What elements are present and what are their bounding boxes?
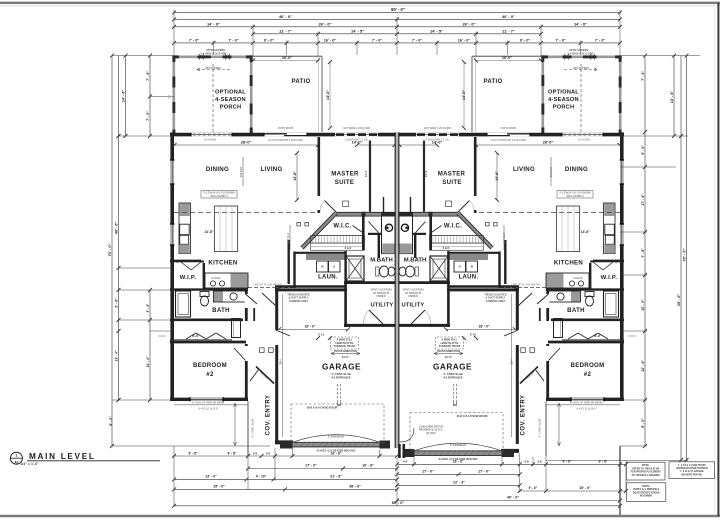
svg-text:SUITE: SUITE — [335, 179, 354, 186]
svg-text:DOOR SPECIFICATIONS: DOOR SPECIFICATIONS — [633, 491, 660, 494]
svg-text:80' - 0": 80' - 0" — [392, 501, 405, 505]
svg-text:LINE OF FLUSH BM ABV: LINE OF FLUSH BM ABV — [511, 284, 541, 287]
svg-text:5-1X10 LP HDR W/ WDW: 5-1X10 LP HDR W/ WDW — [570, 400, 603, 404]
svg-text:17' - 4": 17' - 4" — [641, 194, 645, 206]
svg-text:PATIO: PATIO — [484, 79, 503, 85]
svg-text:COMMON AREA: COMMON AREA — [289, 300, 309, 303]
svg-text:5' SIDEWALK: 5' SIDEWALK — [328, 434, 345, 438]
svg-text:40' - 0": 40' - 0" — [502, 14, 515, 19]
svg-text:4" CONC SLAB: 4" CONC SLAB — [538, 418, 542, 437]
svg-text:8' - 0": 8' - 0" — [641, 418, 645, 428]
svg-text:16' - 0": 16' - 0" — [458, 39, 471, 43]
svg-text:4-6 ENTRANCE: 4-6 ENTRANCE — [331, 376, 351, 380]
svg-text:7' - 0": 7' - 0" — [146, 111, 150, 121]
svg-text:39' - 0": 39' - 0" — [677, 294, 681, 307]
svg-text:16' - 8": 16' - 8" — [453, 460, 464, 464]
svg-text:S & R: S & R — [345, 247, 352, 250]
svg-text:6 2-6 SGD: 6 2-6 SGD — [204, 138, 216, 141]
svg-text:17' - 0": 17' - 0" — [478, 470, 490, 474]
svg-text:70' - 0": 70' - 0" — [107, 243, 112, 256]
svg-text:15' - 0": 15' - 0" — [579, 486, 591, 490]
svg-text:9-4 CLG @ 8-0: 9-4 CLG @ 8-0 — [576, 407, 595, 411]
svg-text:9' - 8": 9' - 8" — [228, 451, 237, 455]
svg-text:COV. ENTRY: COV. ENTRY — [266, 395, 272, 436]
svg-text:OVERHEAD DOOR TORSION: OVERHEAD DOOR TORSION — [676, 467, 708, 470]
svg-text:9' - 0": 9' - 0" — [520, 39, 531, 43]
svg-text:S & R: S & R — [443, 247, 450, 250]
svg-text:4" CONC SLAB: 4" CONC SLAB — [443, 372, 463, 376]
svg-text:7' - 0": 7' - 0" — [555, 39, 566, 43]
svg-text:2X6 EXT: 2X6 EXT — [239, 166, 243, 177]
svg-text:LIVING: LIVING — [260, 166, 282, 173]
svg-text:22' - 3": 22' - 3" — [453, 481, 465, 485]
svg-text:HEADERS PER IRC: HEADERS PER IRC — [681, 473, 703, 476]
svg-text:UNDER: UNDER — [408, 294, 417, 298]
svg-text:7 - 3 1/2 X 14 GDR TRUSS: 7 - 3 1/2 X 14 GDR TRUSS — [678, 464, 706, 467]
svg-text:5' - 4": 5' - 4" — [146, 303, 150, 312]
svg-text:MAIN LEVEL: MAIN LEVEL — [29, 452, 96, 461]
svg-text:16'-0": 16'-0" — [502, 56, 513, 60]
svg-text:LIVING: LIVING — [513, 166, 535, 173]
svg-text:TRUSS DIRECTION: TRUSS DIRECTION — [437, 350, 460, 353]
svg-text:#2: #2 — [206, 371, 214, 378]
svg-text:7' - 0": 7' - 0" — [595, 39, 606, 43]
svg-text:LINE OF FLUSH BM ABV: LINE OF FLUSH BM ABV — [253, 284, 283, 287]
svg-text:17' - 0": 17' - 0" — [305, 464, 317, 468]
svg-text:KITCHEN: KITCHEN — [208, 260, 237, 267]
svg-text:GARAGE: GARAGE — [322, 363, 361, 372]
svg-text:RANGE: RANGE — [573, 277, 582, 280]
svg-text:40' - 0": 40' - 0" — [279, 14, 292, 19]
svg-text:6'-0": 6'-0" — [192, 334, 200, 338]
svg-text:10' - 0": 10' - 0" — [641, 299, 645, 311]
svg-text:21-4: 21-4 — [509, 359, 513, 365]
svg-text:7' - 0": 7' - 0" — [372, 39, 383, 43]
svg-text:6 2-6 SGD: 6 2-6 SGD — [578, 138, 590, 141]
svg-text:ATT ACCESS: ATT ACCESS — [205, 67, 221, 70]
svg-text:4" CONC SLAB: 4" CONC SLAB — [251, 418, 255, 437]
svg-text:ABV (VERIFY): ABV (VERIFY) — [210, 194, 227, 198]
svg-text:14' - 0": 14' - 0" — [207, 21, 220, 26]
svg-text:16' - 8": 16' - 8" — [362, 464, 374, 468]
svg-text:40' - 0": 40' - 0" — [115, 222, 119, 235]
svg-text:12'-8: 12'-8 — [424, 170, 428, 177]
svg-text:KITCHEN: KITCHEN — [554, 260, 583, 267]
svg-text:GARAGE: GARAGE — [433, 363, 472, 372]
svg-text:MASTER: MASTER — [438, 171, 466, 178]
svg-text:2X6 EXT: 2X6 EXT — [549, 166, 553, 177]
svg-text:2-8: 2-8 — [537, 460, 541, 464]
svg-text:18' - 0": 18' - 0" — [478, 325, 489, 329]
svg-text:UNDER: UNDER — [376, 294, 385, 298]
svg-text:STORAGE TRUSS: STORAGE TRUSS — [334, 345, 356, 348]
svg-text:5-1X10 LP HDR W/ WDW: 5-1X10 LP HDR W/ WDW — [192, 400, 225, 404]
svg-text:14'-8": 14'-8" — [581, 230, 590, 234]
svg-text:PATIO DOOR: PATIO DOOR — [501, 127, 517, 130]
svg-text:M.BATH: M.BATH — [370, 258, 392, 264]
svg-text:1/4" = 1'-0": 1/4" = 1'-0" — [20, 462, 39, 466]
svg-text:9' - 0": 9' - 0" — [264, 39, 275, 43]
svg-text:14'-0": 14'-0" — [326, 90, 330, 101]
svg-text:D: D — [459, 265, 461, 269]
svg-text:14' - 4": 14' - 4" — [670, 91, 674, 104]
svg-text:D: D — [333, 265, 335, 269]
svg-text:LR 6-0 PATIO DR 2-2X10 HDR: LR 6-0 PATIO DR 2-2X10 HDR — [268, 139, 303, 142]
svg-text:5' SIDEWALK: 5' SIDEWALK — [450, 443, 467, 447]
svg-text:16-8 X 8-0 OVHD DOOR: 16-8 X 8-0 OVHD DOOR — [456, 414, 487, 418]
svg-text:18' - 0": 18' - 0" — [304, 325, 315, 329]
svg-text:7' - 0": 7' - 0" — [412, 39, 423, 43]
svg-text:2-8: 2-8 — [253, 451, 257, 455]
svg-text:9' - 8": 9' - 8" — [115, 298, 119, 308]
svg-text:BATH: BATH — [567, 307, 585, 314]
svg-text:BEDROOM: BEDROOM — [571, 362, 605, 369]
svg-text:14'-8": 14'-8" — [204, 230, 213, 234]
svg-text:9' - 6": 9' - 6" — [529, 486, 538, 490]
svg-text:2-8: 2-8 — [266, 451, 270, 455]
svg-text:LAUN.: LAUN. — [459, 275, 479, 281]
svg-text:NOTE:: NOTE: — [642, 485, 650, 488]
svg-text:SUITE: SUITE — [442, 179, 461, 186]
svg-text:14' - 0": 14' - 0" — [574, 21, 587, 26]
svg-text:13' - 4": 13' - 4" — [115, 350, 119, 361]
svg-text:7' - 0": 7' - 0" — [189, 39, 200, 43]
svg-text:DINING: DINING — [565, 166, 588, 173]
svg-text:7 - 2 CLG AT GARAGE: 7 - 2 CLG AT GARAGE — [680, 470, 705, 473]
svg-text:14'-0": 14'-0" — [432, 139, 443, 144]
svg-text:OPTIONAL: OPTIONAL — [548, 90, 579, 96]
svg-text:NOTE:: NOTE: — [642, 464, 650, 467]
svg-text:9' - 8": 9' - 8" — [189, 451, 198, 455]
svg-text:16-8 X 8-0 OVHD DOOR: 16-8 X 8-0 OVHD DOOR — [306, 405, 337, 409]
svg-text:16' - 0": 16' - 0" — [324, 39, 337, 43]
svg-text:6' - 0": 6' - 0" — [641, 145, 645, 155]
svg-text:OF TRUSSES & BEARING: OF TRUSSES & BEARING — [632, 474, 660, 477]
svg-text:14' - 5": 14' - 5" — [430, 28, 443, 33]
svg-text:ATTIC ACCESS: ATTIC ACCESS — [206, 48, 225, 52]
svg-text:11' - 7": 11' - 7" — [279, 28, 292, 33]
svg-text:#2: #2 — [584, 371, 592, 378]
svg-text:21-4: 21-4 — [279, 359, 283, 365]
svg-text:W.I.P.: W.I.P. — [601, 275, 618, 281]
svg-text:PATIO DOOR: PATIO DOOR — [278, 127, 294, 130]
svg-text:9-4 CLG: 9-4 CLG — [502, 233, 506, 243]
svg-text:7' - 4": 7' - 4" — [641, 71, 645, 81]
svg-text:FOR PROPER PLACEMENT: FOR PROPER PLACEMENT — [631, 471, 662, 474]
svg-text:7' - 8": 7' - 8" — [641, 248, 645, 258]
svg-text:9-4 CLG: 9-4 CLG — [286, 233, 290, 243]
svg-text:14' - 5": 14' - 5" — [351, 28, 364, 33]
svg-text:W.I.C.: W.I.C. — [333, 224, 351, 230]
svg-text:16'-0": 16'-0" — [282, 56, 293, 60]
svg-text:14'-8": 14'-8" — [293, 171, 297, 181]
svg-text:24'-0": 24'-0" — [342, 355, 350, 359]
svg-text:LAUN.: LAUN. — [318, 275, 338, 281]
svg-text:26' - 0": 26' - 0" — [318, 21, 331, 26]
svg-text:W.I.P.: W.I.P. — [180, 275, 197, 281]
svg-text:16' - 8": 16' - 8" — [331, 451, 342, 455]
svg-text:12' - 4": 12' - 4" — [641, 360, 645, 372]
svg-text:UTILITY: UTILITY — [371, 303, 394, 309]
svg-text:ANT WDW 2-2X10 HDR: ANT WDW 2-2X10 HDR — [424, 127, 451, 130]
svg-text:STORAGE TRUSS: STORAGE TRUSS — [439, 345, 461, 348]
svg-text:38' - 9": 38' - 9" — [349, 485, 361, 489]
svg-text:MASTER: MASTER — [331, 171, 359, 178]
svg-text:40' - 3": 40' - 3" — [507, 496, 519, 500]
svg-text:4-6 ENTRANCE: 4-6 ENTRANCE — [443, 376, 463, 380]
svg-text:14' - 4": 14' - 4" — [146, 356, 150, 367]
svg-text:4' - 10": 4' - 10" — [256, 475, 267, 479]
svg-text:PORCH: PORCH — [553, 105, 575, 111]
svg-text:13' - 0": 13' - 0" — [205, 475, 217, 479]
svg-text:24'-0": 24'-0" — [445, 355, 453, 359]
svg-text:VERIFY ALL WINDOW &: VERIFY ALL WINDOW & — [633, 488, 660, 491]
svg-text:14' - 4": 14' - 4" — [122, 90, 126, 103]
svg-text:9' - 8": 9' - 8" — [599, 460, 608, 464]
svg-text:PORCH: PORCH — [220, 105, 242, 111]
svg-text:ATT ACCESS: ATT ACCESS — [573, 67, 589, 70]
svg-text:80' - 0": 80' - 0" — [391, 7, 405, 12]
svg-text:15' - 0": 15' - 0" — [213, 485, 225, 489]
svg-text:8' - 0": 8' - 0" — [109, 416, 113, 426]
svg-text:REFER TO TRUSS PLAN: REFER TO TRUSS PLAN — [632, 467, 659, 470]
svg-text:BEDROOM: BEDROOM — [193, 362, 227, 369]
svg-text:W.I.C.: W.I.C. — [444, 224, 462, 230]
svg-text:3'-10: 3'-10 — [318, 332, 325, 336]
svg-text:26' - 0": 26' - 0" — [462, 21, 475, 26]
svg-text:14'-0": 14'-0" — [352, 139, 363, 144]
svg-text:LR 6-0 PATIO DR 2-2X10 HDR: LR 6-0 PATIO DR 2-2X10 HDR — [491, 139, 526, 142]
svg-text:3'-10: 3'-10 — [470, 332, 477, 336]
svg-text:4-SEASON: 4-SEASON — [215, 97, 246, 103]
svg-text:4-4: 4-4 — [403, 460, 407, 464]
svg-text:TRUSS DIRECTION: TRUSS DIRECTION — [334, 350, 357, 353]
svg-text:70' - 0": 70' - 0" — [682, 248, 687, 261]
svg-text:28'-0": 28'-0" — [241, 139, 252, 144]
svg-text:COV. ENTRY: COV. ENTRY — [521, 395, 527, 436]
svg-text:12'-8: 12'-8 — [364, 170, 368, 177]
svg-text:COMMON AREA: COMMON AREA — [486, 300, 506, 303]
svg-text:9-4 CLG @ 8-0: 9-4 CLG @ 8-0 — [198, 407, 217, 411]
svg-text:A3: A3 — [167, 95, 171, 99]
svg-text:RANGE: RANGE — [211, 277, 220, 280]
svg-text:ANT WDW 2-2X10 HDR: ANT WDW 2-2X10 HDR — [343, 127, 370, 130]
svg-text:ATTIC ACCESS: ATTIC ACCESS — [569, 48, 588, 52]
svg-text:11' - 7": 11' - 7" — [502, 28, 515, 33]
svg-text:A3: A3 — [14, 460, 18, 464]
svg-text:OPTIONAL: OPTIONAL — [215, 90, 246, 96]
svg-text:(2) 2X12: (2) 2X12 — [426, 432, 436, 435]
svg-text:7' - 4": 7' - 4" — [146, 71, 150, 81]
svg-text:14'-8": 14'-8" — [495, 171, 499, 181]
svg-text:4" CONC SLAB: 4" CONC SLAB — [331, 372, 351, 376]
svg-text:28'-0": 28'-0" — [543, 139, 554, 144]
svg-text:7' - 0": 7' - 0" — [228, 39, 239, 43]
svg-text:ABV (VERIFY): ABV (VERIFY) — [566, 194, 583, 198]
svg-text:W/ OWNER: W/ OWNER — [640, 496, 653, 498]
svg-text:2-8: 2-8 — [524, 460, 528, 464]
svg-text:M.BATH: M.BATH — [404, 258, 426, 264]
svg-text:4-SEASON: 4-SEASON — [548, 97, 579, 103]
svg-text:9' - 8": 9' - 8" — [563, 460, 572, 464]
svg-text:DINING: DINING — [206, 166, 229, 173]
svg-text:UTILITY: UTILITY — [402, 303, 425, 309]
svg-text:1: 1 — [15, 453, 17, 457]
svg-text:BATH: BATH — [212, 307, 230, 314]
svg-text:21' - 9": 21' - 9" — [330, 475, 342, 479]
svg-text:6'-0": 6'-0" — [594, 334, 602, 338]
svg-text:PATIO: PATIO — [292, 79, 311, 85]
svg-text:17' - 0": 17' - 0" — [422, 470, 434, 474]
svg-text:14'-0": 14'-0" — [462, 90, 466, 101]
